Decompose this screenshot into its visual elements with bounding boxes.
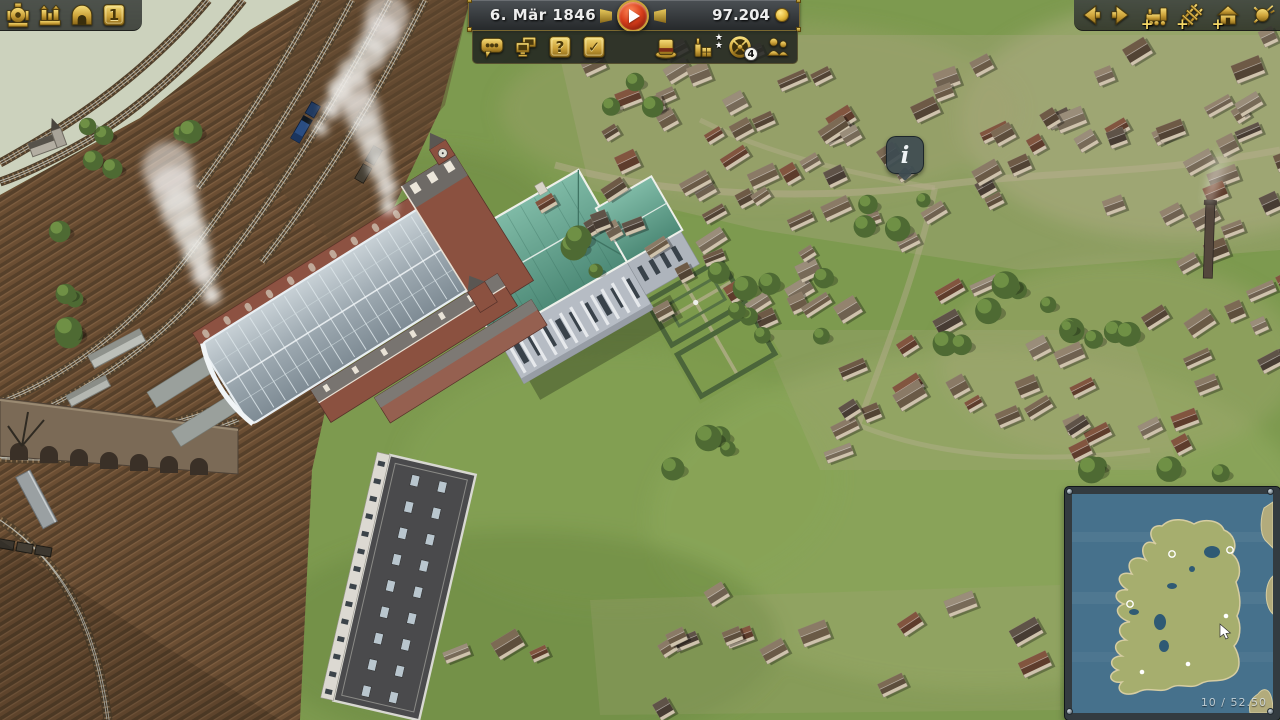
minimap-scale-text: 10 / 52.50: [1201, 696, 1267, 709]
game-date: 6. Mär 1846: [469, 6, 617, 24]
research-button[interactable]: 4: [727, 34, 753, 60]
game-speed-label: 1: [101, 2, 127, 28]
plus-badge: +: [1212, 17, 1225, 32]
help-label: ?: [547, 34, 573, 60]
screens-button[interactable]: [513, 34, 539, 60]
screens-icon: [516, 37, 536, 57]
help-button[interactable]: ?: [547, 34, 573, 60]
top-right-toolbar: + + +: [1074, 0, 1280, 31]
top-hat-icon: [656, 39, 677, 58]
tasks-button[interactable]: ✓: [581, 34, 607, 60]
demolish-icon: [1252, 4, 1274, 26]
game-speed-button[interactable]: 1: [101, 2, 127, 28]
redo-button[interactable]: [1108, 2, 1134, 28]
prestige-button[interactable]: [653, 34, 679, 60]
task-check-label: ✓: [581, 34, 607, 60]
minimap[interactable]: 10 / 52.50: [1065, 487, 1280, 720]
sub-toolbar: ? ✓ ★★ 4: [472, 31, 798, 64]
demolish-button[interactable]: [1250, 2, 1276, 28]
locomotive-icon: [7, 3, 29, 27]
goods-icon: [695, 38, 711, 56]
stations-menu-button[interactable]: [37, 2, 63, 28]
game-screen: 1 6. Mär 1846 97.204 ? ✓: [0, 0, 1280, 720]
build-station-button[interactable]: +: [1215, 2, 1241, 28]
chat-dots-icon: [481, 38, 503, 58]
minimap-canvas: [1072, 494, 1273, 713]
station-icon: [40, 5, 61, 25]
plus-badge: +: [1176, 17, 1189, 32]
top-left-toolbar: 1: [0, 0, 142, 31]
depots-menu-button[interactable]: [69, 2, 95, 28]
info-marker[interactable]: i: [886, 136, 924, 174]
arrow-right-icon: [1112, 6, 1128, 24]
lay-track-button[interactable]: +: [1179, 2, 1205, 28]
locomotives-menu-button[interactable]: [5, 2, 31, 28]
staff-icon: [768, 38, 788, 55]
undo-button[interactable]: [1078, 2, 1104, 28]
play-pause-button[interactable]: [617, 0, 649, 32]
goods-stars: ★★: [715, 34, 723, 50]
play-icon: [629, 9, 640, 23]
plus-badge: +: [1141, 17, 1154, 32]
arrow-left-icon: [1084, 6, 1100, 24]
messages-button[interactable]: [479, 34, 505, 60]
buy-locomotive-button[interactable]: +: [1144, 2, 1170, 28]
coin-icon: [775, 8, 789, 22]
money-amount: 97.204: [712, 6, 770, 24]
roundhouse-icon: [72, 5, 92, 24]
goods-button[interactable]: ★★: [689, 34, 715, 60]
research-count-badge: 4: [744, 47, 758, 61]
staff-button[interactable]: [765, 34, 791, 60]
